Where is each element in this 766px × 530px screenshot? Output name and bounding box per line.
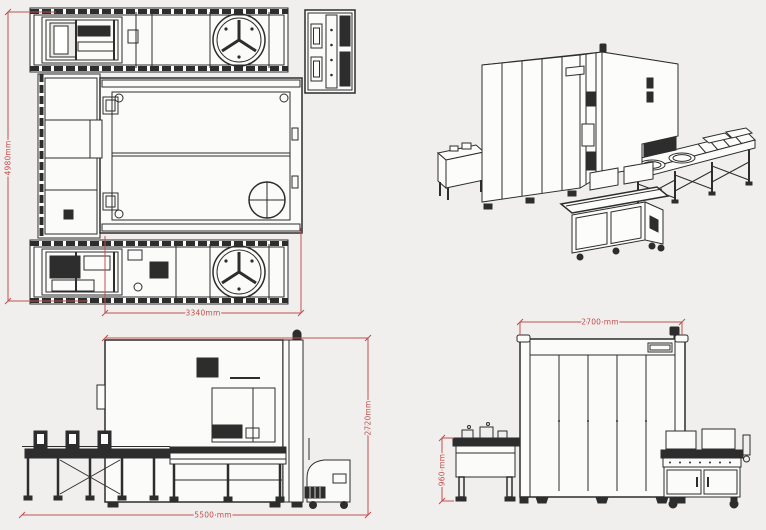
front-height-dimension-label: 2720mm bbox=[364, 401, 373, 436]
iso-main-cabinet bbox=[482, 44, 678, 209]
iso-infeed-table bbox=[438, 143, 484, 200]
isometric-view bbox=[420, 32, 766, 264]
plan-top-machine-module bbox=[30, 8, 288, 72]
side-width-dimension-label: 2700 mm bbox=[581, 318, 618, 327]
technical-drawing: 4980mm 3340mm bbox=[0, 0, 766, 530]
side-view: 2700 mm 960 mm bbox=[428, 315, 766, 530]
plan-view-panel: 4980mm 3340mm bbox=[0, 0, 385, 330]
front-width-dimension-label: 5500 mm bbox=[194, 511, 231, 520]
plan-width-dimension-label: 3340mm bbox=[186, 309, 221, 318]
front-view: 5500 mm 2720mm bbox=[8, 318, 388, 530]
side-height-dimension-label: 960 mm bbox=[438, 454, 447, 487]
side-cabinet bbox=[517, 327, 688, 503]
plan-view: 4980mm 3340mm bbox=[0, 0, 385, 330]
plan-electrical-panel bbox=[305, 10, 355, 93]
plan-main-cover bbox=[90, 78, 302, 233]
side-infeed-table bbox=[453, 423, 519, 502]
front-control-cart bbox=[305, 438, 350, 509]
side-control-cart bbox=[661, 429, 750, 508]
isometric-view-panel bbox=[420, 32, 766, 264]
side-view-panel: 2700 mm 960 mm bbox=[428, 315, 766, 530]
plan-height-dimension-label: 4980mm bbox=[4, 141, 13, 176]
front-view-panel: 5500 mm 2720mm bbox=[8, 318, 388, 530]
plan-bottom-machine-module bbox=[30, 240, 288, 304]
